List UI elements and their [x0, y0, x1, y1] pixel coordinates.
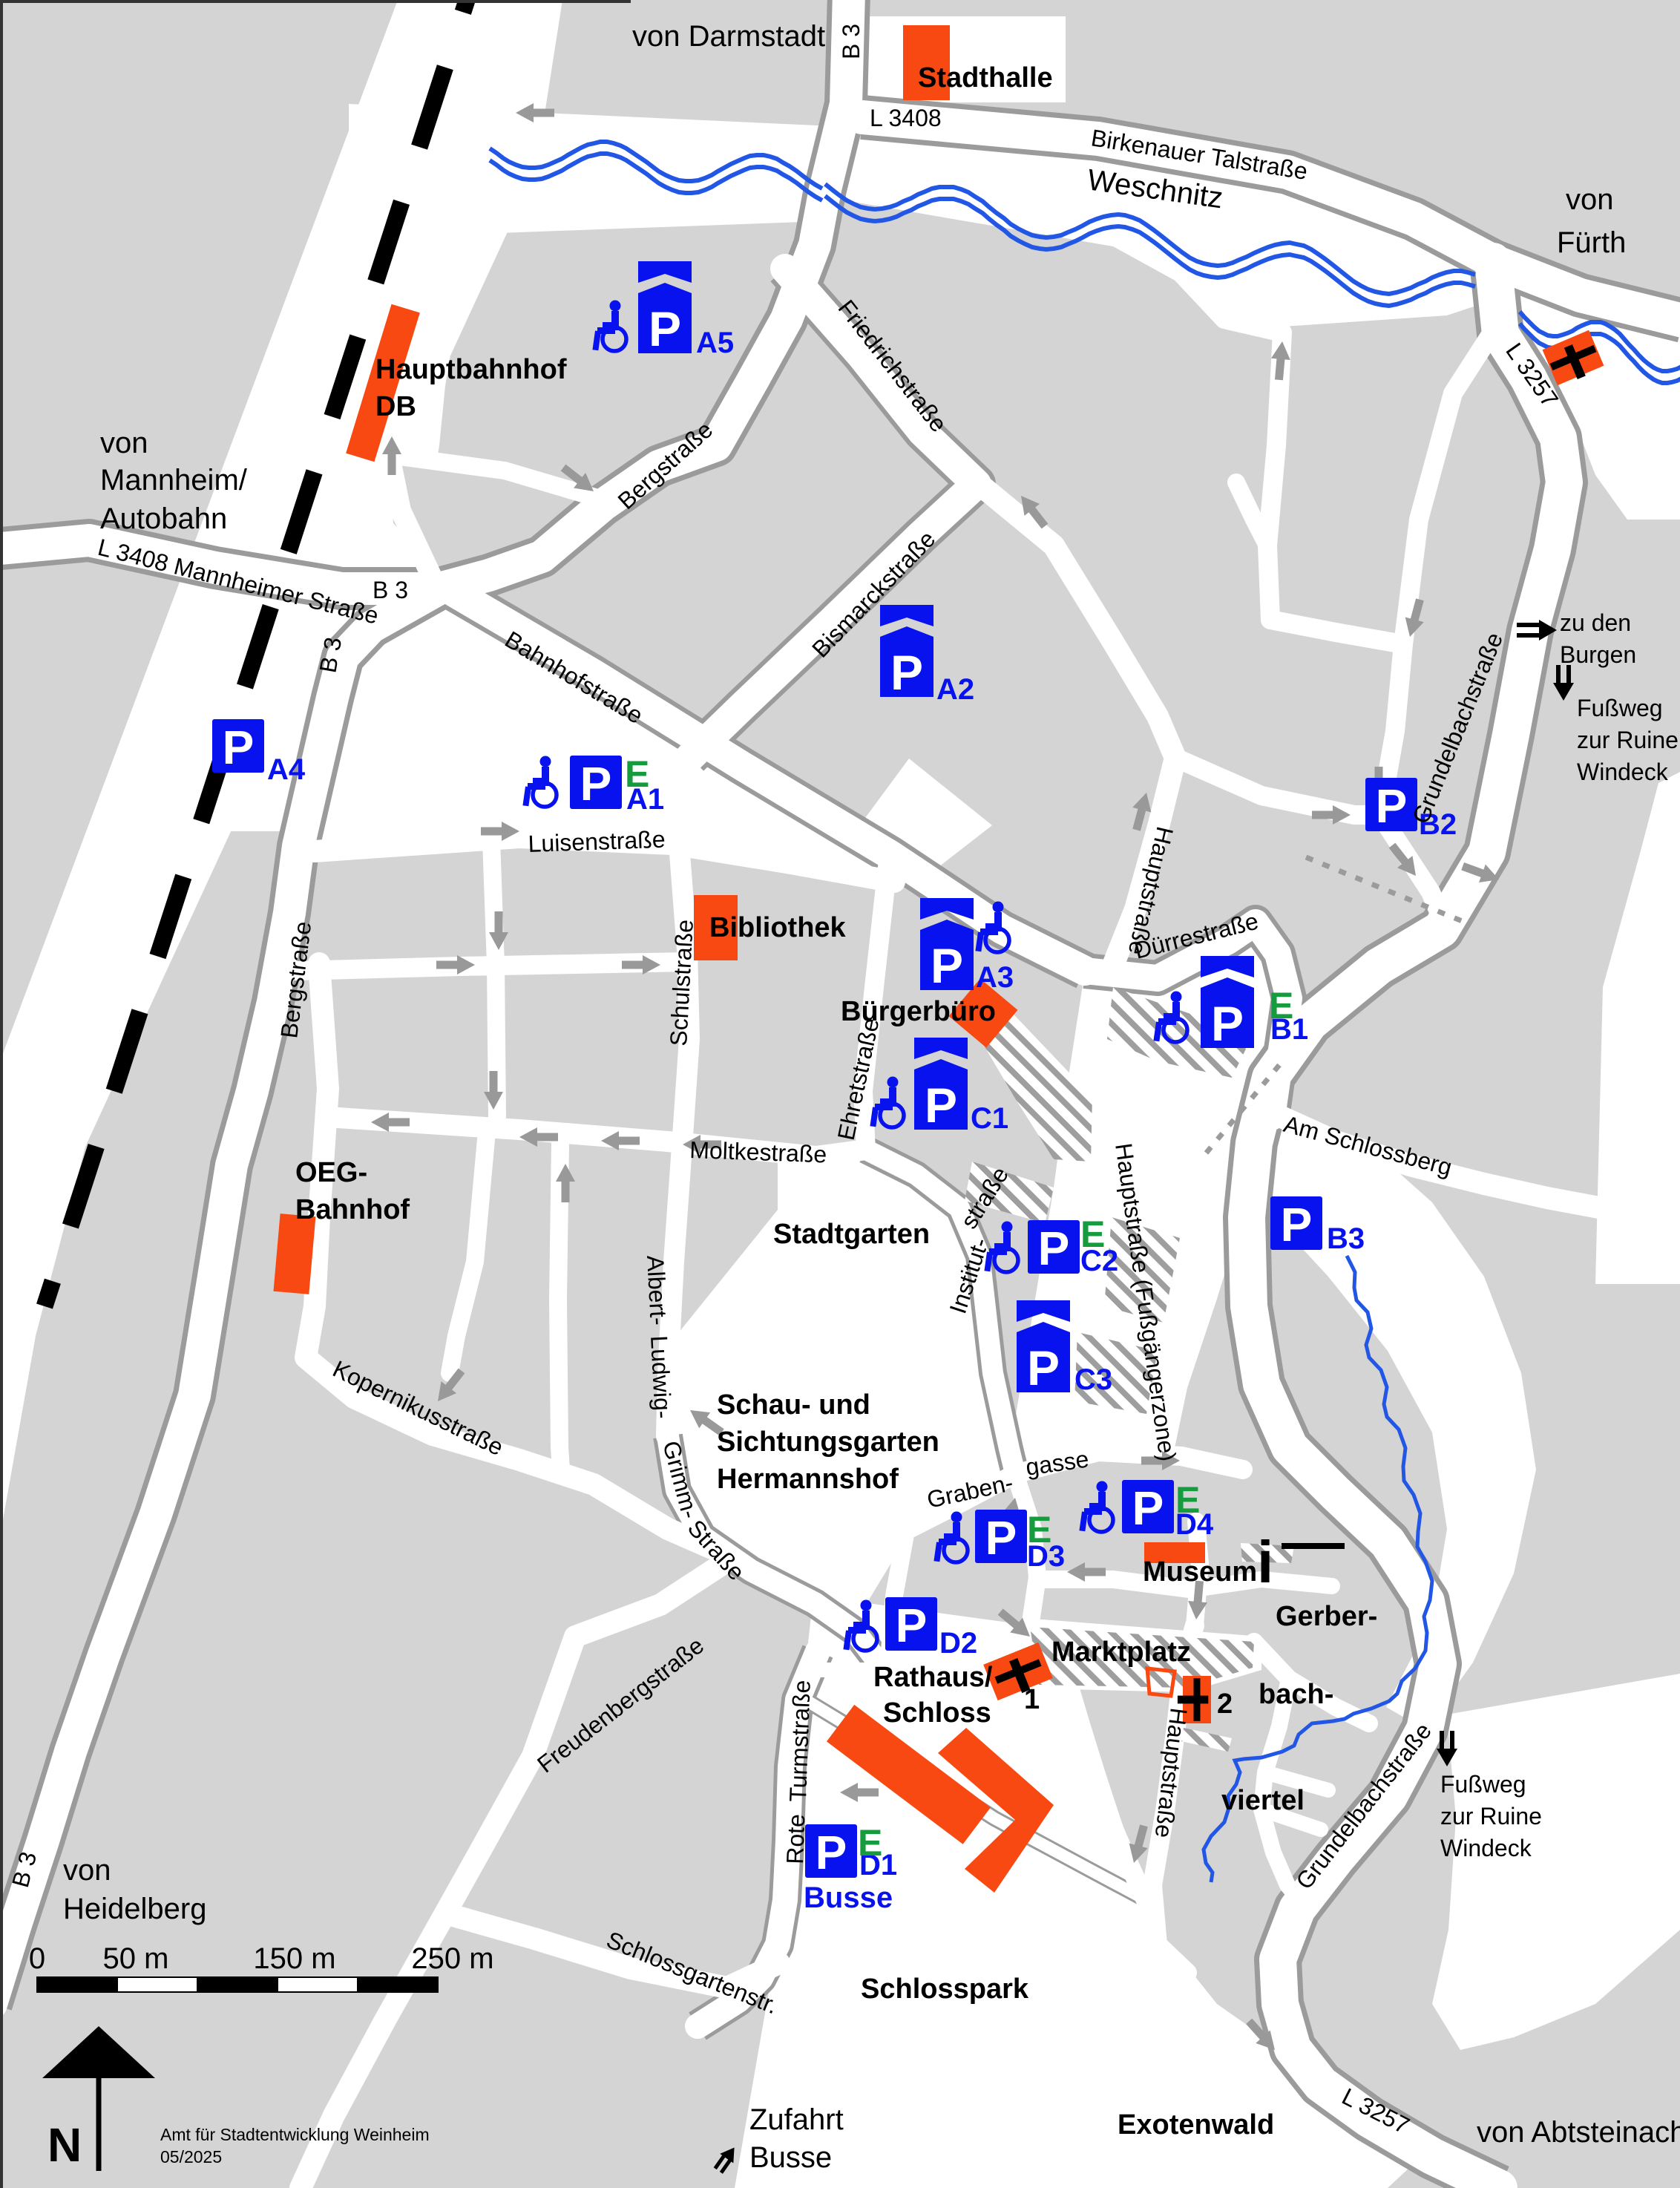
svg-text:Sichtungsgarten: Sichtungsgarten: [717, 1427, 939, 1458]
svg-text:von: von: [100, 427, 148, 459]
svg-text:von: von: [63, 1854, 111, 1887]
svg-text:Albert-: Albert-: [642, 1254, 672, 1326]
svg-text:Bahnhof: Bahnhof: [295, 1194, 410, 1225]
svg-text:Busse: Busse: [804, 1881, 893, 1914]
svg-text:Hermannshof: Hermannshof: [717, 1464, 899, 1495]
svg-text:A3: A3: [976, 961, 1014, 994]
svg-text:E: E: [1027, 1509, 1051, 1550]
svg-text:zur Ruine: zur Ruine: [1440, 1803, 1542, 1830]
svg-text:Autobahn: Autobahn: [100, 502, 227, 535]
svg-text:Zufahrt: Zufahrt: [749, 2103, 844, 2136]
svg-text:Moltkestraße: Moltkestraße: [689, 1136, 827, 1167]
svg-text:A2: A2: [936, 673, 974, 706]
svg-text:E: E: [1175, 1479, 1200, 1521]
svg-text:0: 0: [29, 1942, 45, 1975]
svg-text:i: i: [1257, 1529, 1273, 1595]
svg-text:von: von: [1566, 183, 1614, 216]
svg-text:Hauptbahnhof: Hauptbahnhof: [375, 354, 567, 385]
svg-text:2: 2: [1217, 1689, 1233, 1720]
svg-text:D2: D2: [939, 1627, 977, 1660]
svg-text:250 m: 250 m: [411, 1942, 493, 1975]
svg-text:50 m: 50 m: [103, 1942, 169, 1975]
svg-text:B 3: B 3: [838, 24, 864, 59]
svg-text:DB: DB: [375, 391, 416, 422]
svg-text:Schlosspark: Schlosspark: [861, 1974, 1029, 2005]
svg-text:B 3: B 3: [373, 577, 408, 603]
svg-text:Heidelberg: Heidelberg: [63, 1893, 206, 1925]
svg-text:05/2025: 05/2025: [160, 2147, 222, 2166]
svg-text:von Darmstadt: von Darmstadt: [632, 20, 825, 53]
svg-text:bach-: bach-: [1259, 1679, 1333, 1710]
svg-text:A4: A4: [267, 753, 306, 786]
svg-text:von Abtsteinach: von Abtsteinach: [1477, 2116, 1680, 2149]
svg-text:Stadthalle: Stadthalle: [918, 62, 1053, 94]
svg-text:Exotenwald: Exotenwald: [1118, 2109, 1274, 2140]
svg-text:E: E: [625, 753, 649, 795]
svg-text:E: E: [1080, 1213, 1105, 1255]
svg-text:Bibliothek: Bibliothek: [709, 912, 847, 943]
svg-text:150 m: 150 m: [253, 1942, 335, 1975]
svg-text:B3: B3: [1327, 1222, 1365, 1255]
svg-text:Mannheim/: Mannheim/: [100, 464, 248, 497]
svg-text:OEG-: OEG-: [295, 1157, 367, 1188]
svg-text:E: E: [1269, 985, 1293, 1026]
svg-text:Fußweg: Fußweg: [1577, 695, 1663, 721]
svg-text:A5: A5: [696, 327, 734, 359]
svg-text:Luisenstraße: Luisenstraße: [528, 826, 666, 857]
svg-text:Stadtgarten: Stadtgarten: [773, 1219, 930, 1250]
svg-text:Fürth: Fürth: [1557, 226, 1626, 259]
svg-text:Schloss: Schloss: [883, 1697, 991, 1729]
svg-text:N: N: [47, 2118, 82, 2172]
svg-text:Windeck: Windeck: [1440, 1835, 1532, 1861]
svg-text:zur Ruine: zur Ruine: [1577, 727, 1679, 753]
svg-text:Ludwig-: Ludwig-: [646, 1334, 677, 1419]
svg-text:Schau- und: Schau- und: [717, 1389, 870, 1421]
svg-text:Rote: Rote: [781, 1813, 810, 1864]
svg-text:E: E: [858, 1822, 882, 1864]
svg-text:zu den: zu den: [1560, 609, 1631, 636]
svg-text:Turmstraße: Turmstraße: [784, 1680, 816, 1802]
svg-text:1: 1: [1024, 1684, 1040, 1715]
svg-text:Rathaus/: Rathaus/: [873, 1662, 993, 1693]
svg-text:Amt für Stadtentwicklung Weinh: Amt für Stadtentwicklung Weinheim: [160, 2125, 430, 2144]
svg-text:Fußweg: Fußweg: [1440, 1771, 1526, 1798]
svg-text:L 3408: L 3408: [870, 105, 942, 131]
svg-text:viertel: viertel: [1221, 1785, 1305, 1816]
svg-text:Museum: Museum: [1143, 1556, 1257, 1588]
svg-text:Marktplatz: Marktplatz: [1051, 1637, 1191, 1668]
svg-text:C1: C1: [971, 1102, 1008, 1135]
svg-text:Busse: Busse: [749, 2141, 832, 2174]
svg-text:Gerber-: Gerber-: [1276, 1601, 1377, 1632]
svg-text:Burgen: Burgen: [1560, 641, 1636, 668]
svg-text:Windeck: Windeck: [1577, 759, 1669, 785]
svg-text:C3: C3: [1074, 1363, 1112, 1396]
